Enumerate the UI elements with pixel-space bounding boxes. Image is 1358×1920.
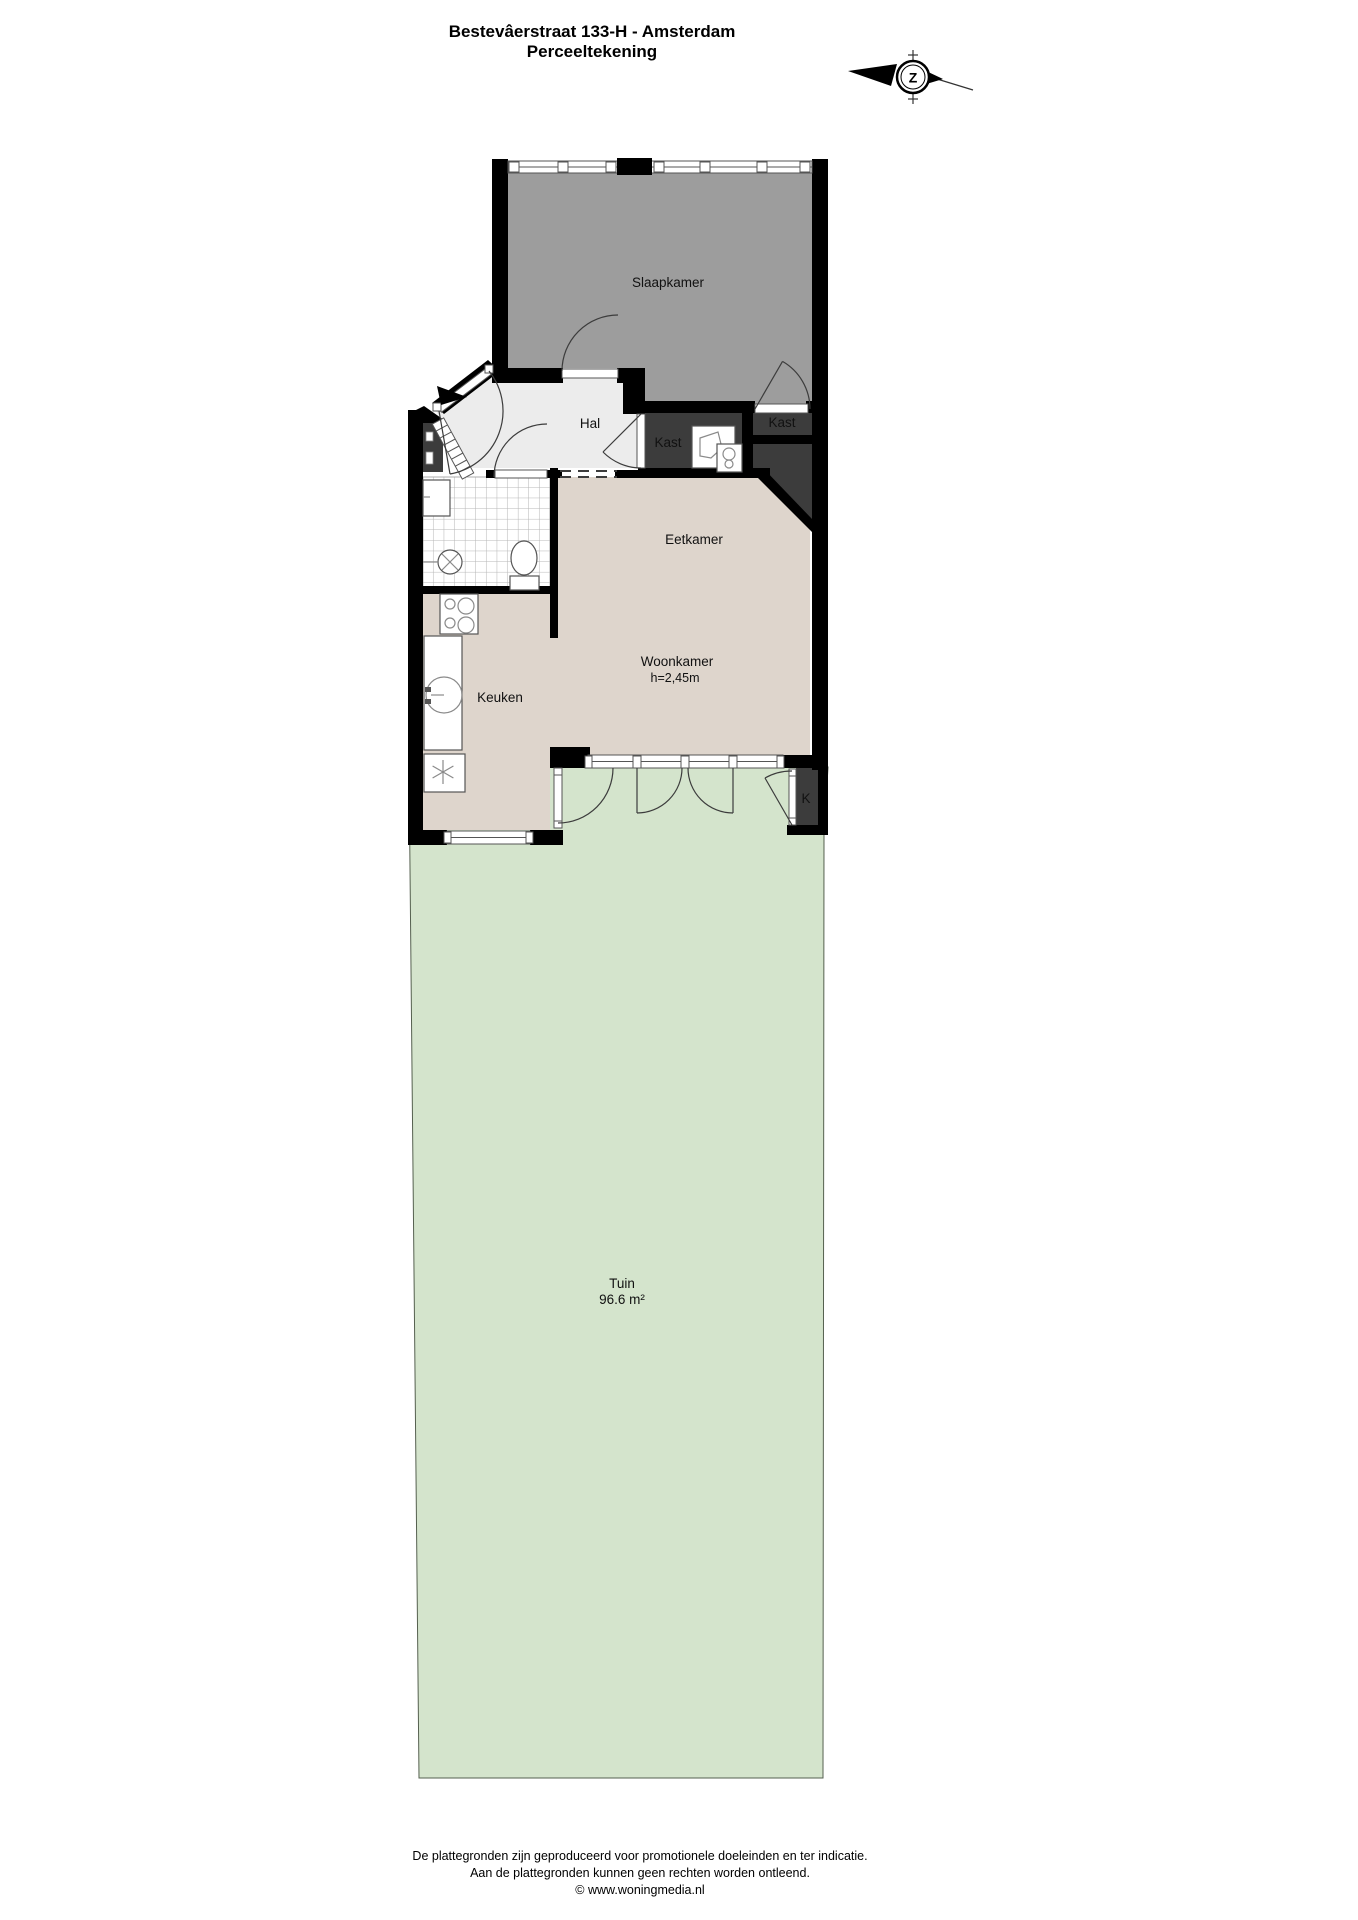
- boiler-icon: [692, 426, 742, 472]
- toilet-icon: [510, 541, 539, 590]
- label-slaapkamer: Slaapkamer: [632, 275, 705, 290]
- label-woonkamer-height: h=2,45m: [651, 671, 700, 685]
- floorplan-page: Bestevâerstraat 133-H - Amsterdam Percee…: [0, 0, 1358, 1920]
- meter-icon: [426, 452, 433, 464]
- floorplan-drawing: Slaapkamer Hal Kast Kast Eetkamer Woonka…: [0, 0, 1358, 1920]
- label-eetkamer: Eetkamer: [665, 532, 723, 547]
- compass-letter: Z: [909, 70, 918, 86]
- washbasin-icon: [423, 480, 450, 516]
- label-woonkamer: Woonkamer: [641, 654, 714, 669]
- freezer-icon: [424, 754, 465, 792]
- open-passage: [560, 471, 617, 477]
- copyright: © www.woningmedia.nl: [412, 1882, 867, 1899]
- cooktop-icon: [440, 594, 478, 634]
- disclaimer-line2: Aan de plattegronden kunnen geen rechten…: [412, 1865, 867, 1882]
- disclaimer: De plattegronden zijn geproduceerd voor …: [412, 1848, 867, 1899]
- label-tuin: Tuin: [609, 1276, 635, 1291]
- label-k-shed: K: [801, 791, 810, 806]
- label-kast2: Kast: [768, 415, 795, 430]
- label-hal: Hal: [580, 416, 600, 431]
- label-tuin-area: 96.6 m²: [599, 1292, 645, 1307]
- garden: [409, 767, 828, 1778]
- meter-icon: [426, 432, 433, 441]
- north-compass-icon: Z: [848, 50, 973, 104]
- label-kast1: Kast: [654, 435, 681, 450]
- label-keuken: Keuken: [477, 690, 523, 705]
- kitchen-sink-icon: [424, 636, 462, 750]
- disclaimer-line1: De plattegronden zijn geproduceerd voor …: [412, 1848, 867, 1865]
